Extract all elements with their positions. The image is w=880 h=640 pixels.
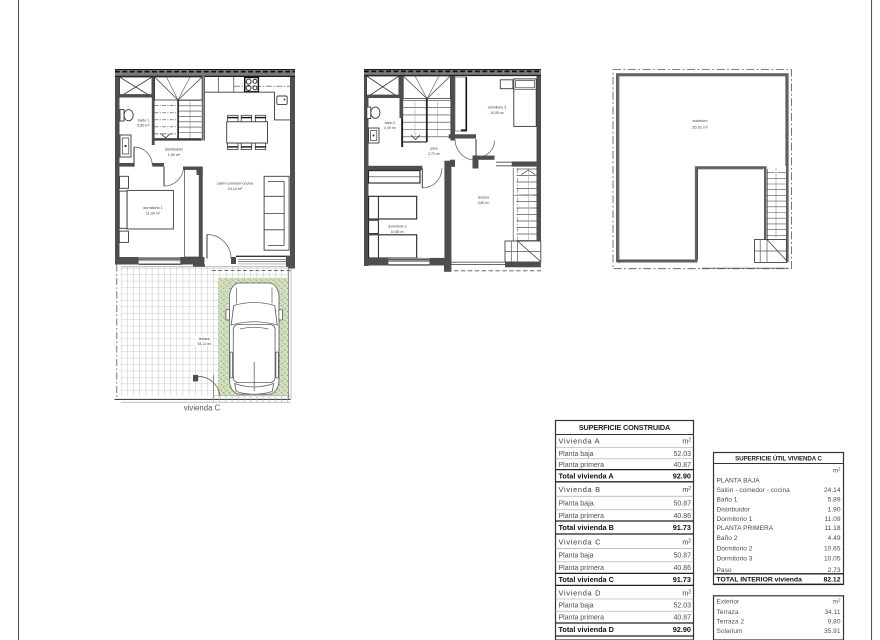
svg-text:Vivienda B: Vivienda B bbox=[559, 485, 601, 494]
svg-text:SUPERFICIE CONSTRUIDA: SUPERFICIE CONSTRUIDA bbox=[579, 423, 671, 432]
svg-text:Planta primera: Planta primera bbox=[559, 565, 605, 572]
svg-text:4.49: 4.49 bbox=[828, 535, 841, 542]
svg-text:Baño 2: Baño 2 bbox=[717, 535, 738, 542]
svg-text:24.14: 24.14 bbox=[824, 487, 841, 494]
svg-text:Terraza: Terraza bbox=[717, 609, 739, 616]
svg-text:Planta primera: Planta primera bbox=[559, 615, 605, 622]
svg-text:91.73: 91.73 bbox=[673, 575, 691, 584]
svg-text:Total vivienda A: Total vivienda A bbox=[559, 471, 615, 480]
svg-text:11.09: 11.09 bbox=[824, 516, 840, 523]
svg-text:baño 2: baño 2 bbox=[385, 121, 396, 125]
svg-text:92.90: 92.90 bbox=[673, 625, 691, 634]
svg-text:paso: paso bbox=[430, 147, 438, 151]
svg-text:9.80: 9.80 bbox=[828, 618, 841, 625]
svg-text:40.87: 40.87 bbox=[673, 462, 691, 469]
svg-text:Vivienda D: Vivienda D bbox=[559, 588, 602, 597]
svg-text:terraza: terraza bbox=[478, 196, 489, 200]
svg-text:baño 1: baño 1 bbox=[138, 119, 149, 123]
svg-text:Total vivienda C: Total vivienda C bbox=[559, 575, 615, 584]
svg-text:Vivienda C: Vivienda C bbox=[559, 537, 602, 546]
svg-text:34.11: 34.11 bbox=[824, 609, 840, 616]
svg-text:Total vivienda B: Total vivienda B bbox=[559, 523, 614, 532]
svg-text:82.12: 82.12 bbox=[823, 577, 840, 584]
svg-text:PLANTA BAJA: PLANTA BAJA bbox=[717, 477, 761, 484]
svg-text:35,91 m²: 35,91 m² bbox=[692, 125, 708, 130]
svg-text:dormitorio 1: dormitorio 1 bbox=[143, 206, 162, 210]
svg-text:Planta baja: Planta baja bbox=[559, 603, 594, 610]
svg-text:Planta baja: Planta baja bbox=[559, 553, 594, 560]
svg-text:dormitorio 2: dormitorio 2 bbox=[388, 225, 407, 229]
svg-text:solarium: solarium bbox=[692, 118, 708, 123]
svg-text:5,89 m²: 5,89 m² bbox=[137, 124, 150, 128]
svg-text:SUPERFICIE ÚTIL VIVIENDA C: SUPERFICIE ÚTIL VIVIENDA C bbox=[735, 456, 822, 463]
svg-text:50.87: 50.87 bbox=[673, 501, 691, 508]
svg-text:Dormitorio 2: Dormitorio 2 bbox=[717, 545, 753, 552]
svg-text:Exterior: Exterior bbox=[717, 599, 741, 606]
svg-text:Salón - comedor - cocina: Salón - comedor - cocina bbox=[717, 487, 791, 494]
svg-text:1.90: 1.90 bbox=[828, 506, 841, 513]
svg-text:10.05: 10.05 bbox=[824, 556, 841, 563]
svg-text:Planta primera: Planta primera bbox=[559, 513, 605, 520]
svg-text:4,49 m²: 4,49 m² bbox=[384, 126, 397, 130]
svg-text:1,90 m²: 1,90 m² bbox=[168, 153, 181, 157]
svg-text:salón-comedor-cocina: salón-comedor-cocina bbox=[217, 182, 254, 186]
svg-text:distribuidor: distribuidor bbox=[165, 148, 184, 152]
svg-text:40.86: 40.86 bbox=[673, 513, 691, 520]
svg-text:10.65: 10.65 bbox=[824, 545, 841, 552]
svg-text:34,11 m²: 34,11 m² bbox=[198, 342, 212, 346]
svg-text:Planta primera: Planta primera bbox=[559, 462, 605, 469]
svg-text:Planta baja: Planta baja bbox=[559, 451, 594, 458]
svg-text:52.03: 52.03 bbox=[673, 451, 691, 458]
svg-text:Dormitorio 3: Dormitorio 3 bbox=[717, 556, 753, 563]
svg-text:Distribuidor: Distribuidor bbox=[717, 506, 751, 513]
svg-text:Paso: Paso bbox=[717, 567, 732, 574]
svg-text:Planta baja.: Planta baja. bbox=[559, 501, 596, 508]
svg-text:TOTAL INTERIOR vivienda: TOTAL INTERIOR vivienda bbox=[717, 577, 803, 584]
svg-text:10,65 m²: 10,65 m² bbox=[391, 230, 406, 234]
svg-text:11.18: 11.18 bbox=[824, 525, 840, 532]
svg-text:10,05 m²: 10,05 m² bbox=[490, 111, 505, 115]
svg-text:92.90: 92.90 bbox=[673, 471, 691, 480]
svg-text:2.73: 2.73 bbox=[828, 567, 841, 574]
svg-text:Terraza 2: Terraza 2 bbox=[717, 618, 745, 625]
svg-text:Solarium: Solarium bbox=[717, 628, 744, 635]
svg-text:Baño 1: Baño 1 bbox=[717, 497, 738, 504]
svg-text:24,14 m²: 24,14 m² bbox=[228, 187, 243, 191]
svg-text:40.86: 40.86 bbox=[673, 565, 691, 572]
svg-text:5.89: 5.89 bbox=[828, 497, 841, 504]
svg-text:52.03: 52.03 bbox=[673, 603, 691, 610]
svg-text:40.87: 40.87 bbox=[673, 615, 691, 622]
svg-text:terraza: terraza bbox=[199, 337, 210, 341]
svg-text:9,80 m²: 9,80 m² bbox=[478, 201, 491, 205]
svg-text:vivienda C: vivienda C bbox=[184, 403, 221, 412]
svg-text:11,09 m²: 11,09 m² bbox=[146, 212, 161, 216]
svg-text:Dormitorio 1: Dormitorio 1 bbox=[717, 516, 753, 523]
svg-text:35.91: 35.91 bbox=[824, 628, 841, 635]
svg-text:PLANTA PRIMERA: PLANTA PRIMERA bbox=[717, 525, 774, 532]
svg-text:2,73 m²: 2,73 m² bbox=[428, 152, 441, 156]
svg-text:50.87: 50.87 bbox=[673, 553, 691, 560]
svg-text:91.73: 91.73 bbox=[673, 523, 691, 532]
svg-text:dormitorio 3: dormitorio 3 bbox=[488, 106, 507, 110]
svg-text:Total vivienda D: Total vivienda D bbox=[559, 625, 614, 634]
svg-text:Vivienda A: Vivienda A bbox=[559, 437, 601, 446]
